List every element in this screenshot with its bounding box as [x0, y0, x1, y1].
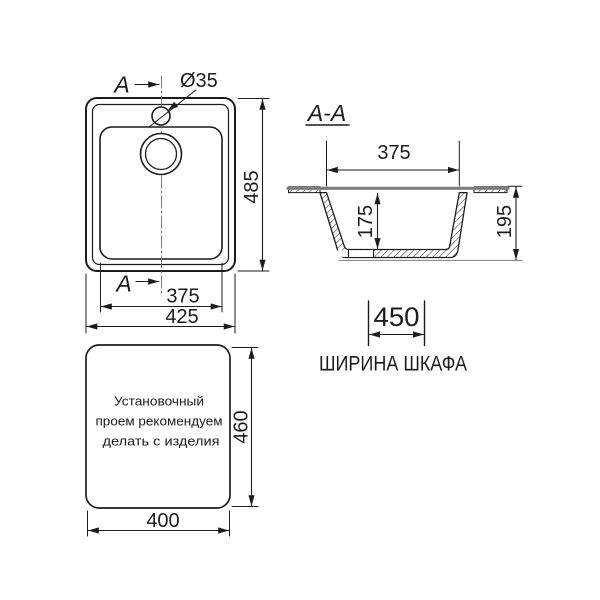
overall-width-dimension-425 [86, 274, 235, 333]
inner-depth-dimension-label: 175 [355, 205, 377, 238]
sink-dimension-drawing: Ø35 A A 485 375 425 A-A [0, 0, 600, 600]
cabinet-width-label: 450 [374, 302, 420, 332]
technical-drawing-page: Ø35 A A 485 375 425 A-A [0, 0, 600, 600]
cabinet-width-caption: ШИРИНА ШКАФА [319, 353, 467, 376]
section-label-top: A [112, 72, 129, 98]
section-view-title: A-A [306, 100, 346, 126]
faucet-hole-diameter-label: Ø35 [180, 70, 218, 92]
cutout-view: Установочный проем рекомендуем делать с … [86, 345, 258, 536]
cutout-note-line-1: Установочный [114, 394, 204, 409]
overall-depth-dimension-label: 195 [494, 205, 516, 238]
drain-gap [337, 250, 373, 257]
cabinet-width-callout: 450 ШИРИНА ШКАФА [319, 301, 467, 376]
cutout-width-dimension-label: 400 [146, 510, 179, 532]
height-dimension-label: 485 [241, 170, 263, 203]
top-view: Ø35 A A 485 375 425 [86, 70, 269, 333]
section-view: A-A 375 175 195 [288, 100, 522, 260]
bowl-width-dimension-label: 375 [166, 286, 199, 308]
cutout-note-line-2: проем рекомендуем [96, 414, 223, 429]
cutout-height-dimension-label: 460 [231, 410, 253, 443]
section-label-bottom: A [114, 271, 131, 297]
overall-width-dimension-label: 425 [165, 306, 198, 328]
sink-wall-section [320, 193, 467, 258]
drain-outer-circle [141, 134, 182, 175]
section-width-dimension-label: 375 [377, 142, 410, 164]
cutout-note-line-3: делать с изделия [103, 434, 220, 449]
